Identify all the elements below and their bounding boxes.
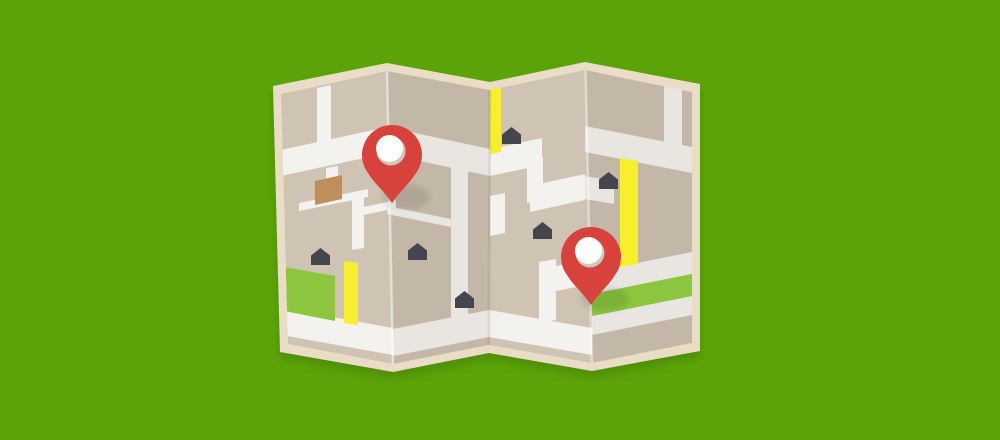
road-segment bbox=[664, 85, 682, 161]
road-segment bbox=[490, 193, 505, 236]
road-segment bbox=[539, 259, 556, 323]
yellow-road-segment bbox=[620, 158, 638, 267]
folded-map-illustration bbox=[0, 0, 1000, 440]
fold-crease bbox=[489, 88, 490, 347]
map-face bbox=[281, 68, 692, 366]
yellow-road-segment bbox=[490, 87, 501, 154]
yellow-road-segment bbox=[344, 261, 358, 325]
road-segment bbox=[352, 191, 364, 250]
road-segment bbox=[317, 85, 331, 151]
